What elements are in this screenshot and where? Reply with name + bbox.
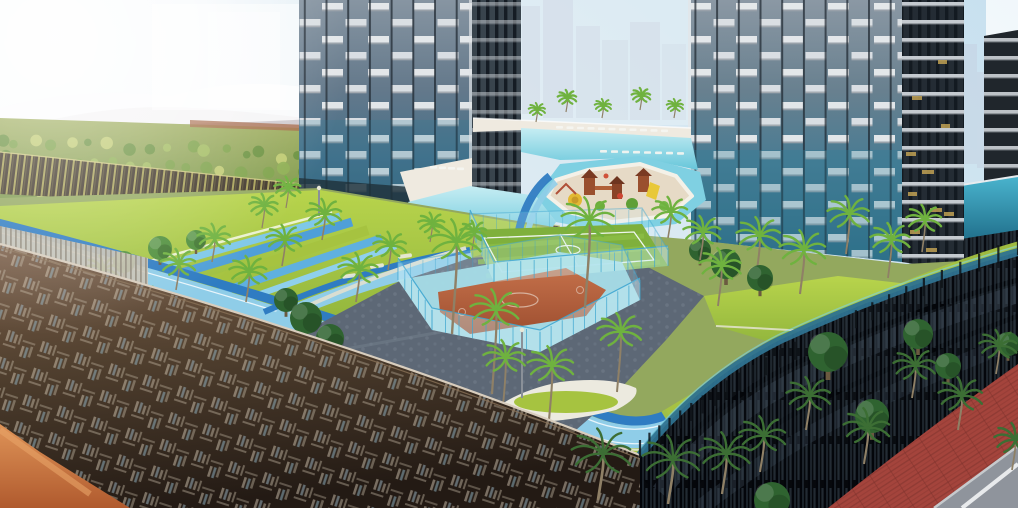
sun-haze-overlay — [0, 0, 1018, 508]
render-canvas — [0, 0, 1018, 508]
architectural-rendering — [0, 0, 1018, 508]
